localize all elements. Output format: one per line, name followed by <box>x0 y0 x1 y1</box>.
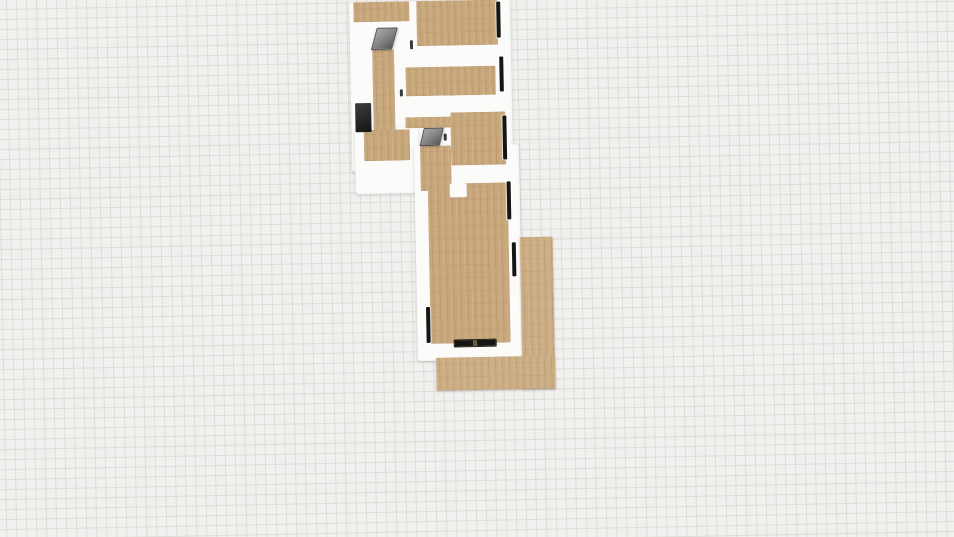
door-leaf-middle[interactable] <box>420 128 444 146</box>
hall-cross-strip[interactable] <box>405 116 451 128</box>
room-mid-east[interactable] <box>450 111 506 165</box>
frame-mark-3 <box>444 134 447 141</box>
dark-wall-west <box>355 103 372 132</box>
hall-elbow[interactable] <box>364 129 411 161</box>
frame-mark-1 <box>410 40 413 49</box>
entry-double-door[interactable] <box>454 339 497 348</box>
room-top-left[interactable] <box>353 1 409 22</box>
window-east-5[interactable] <box>512 242 517 276</box>
window-east-4[interactable] <box>507 181 512 219</box>
design-canvas[interactable] <box>0 0 954 537</box>
floor-plan[interactable] <box>0 0 954 537</box>
deck-south[interactable] <box>436 356 556 391</box>
frame-mark-2 <box>400 89 403 96</box>
room-top-right[interactable] <box>416 0 498 46</box>
window-east-1[interactable] <box>496 2 501 38</box>
room-middle[interactable] <box>405 66 496 97</box>
grid-ground-plane[interactable] <box>0 0 954 537</box>
living-room[interactable] <box>428 182 511 344</box>
hall-west-strip[interactable] <box>372 50 396 135</box>
window-west-1[interactable] <box>426 307 431 343</box>
window-east-3[interactable] <box>502 115 507 159</box>
living-room-notch <box>450 183 467 197</box>
window-east-2[interactable] <box>499 56 504 91</box>
